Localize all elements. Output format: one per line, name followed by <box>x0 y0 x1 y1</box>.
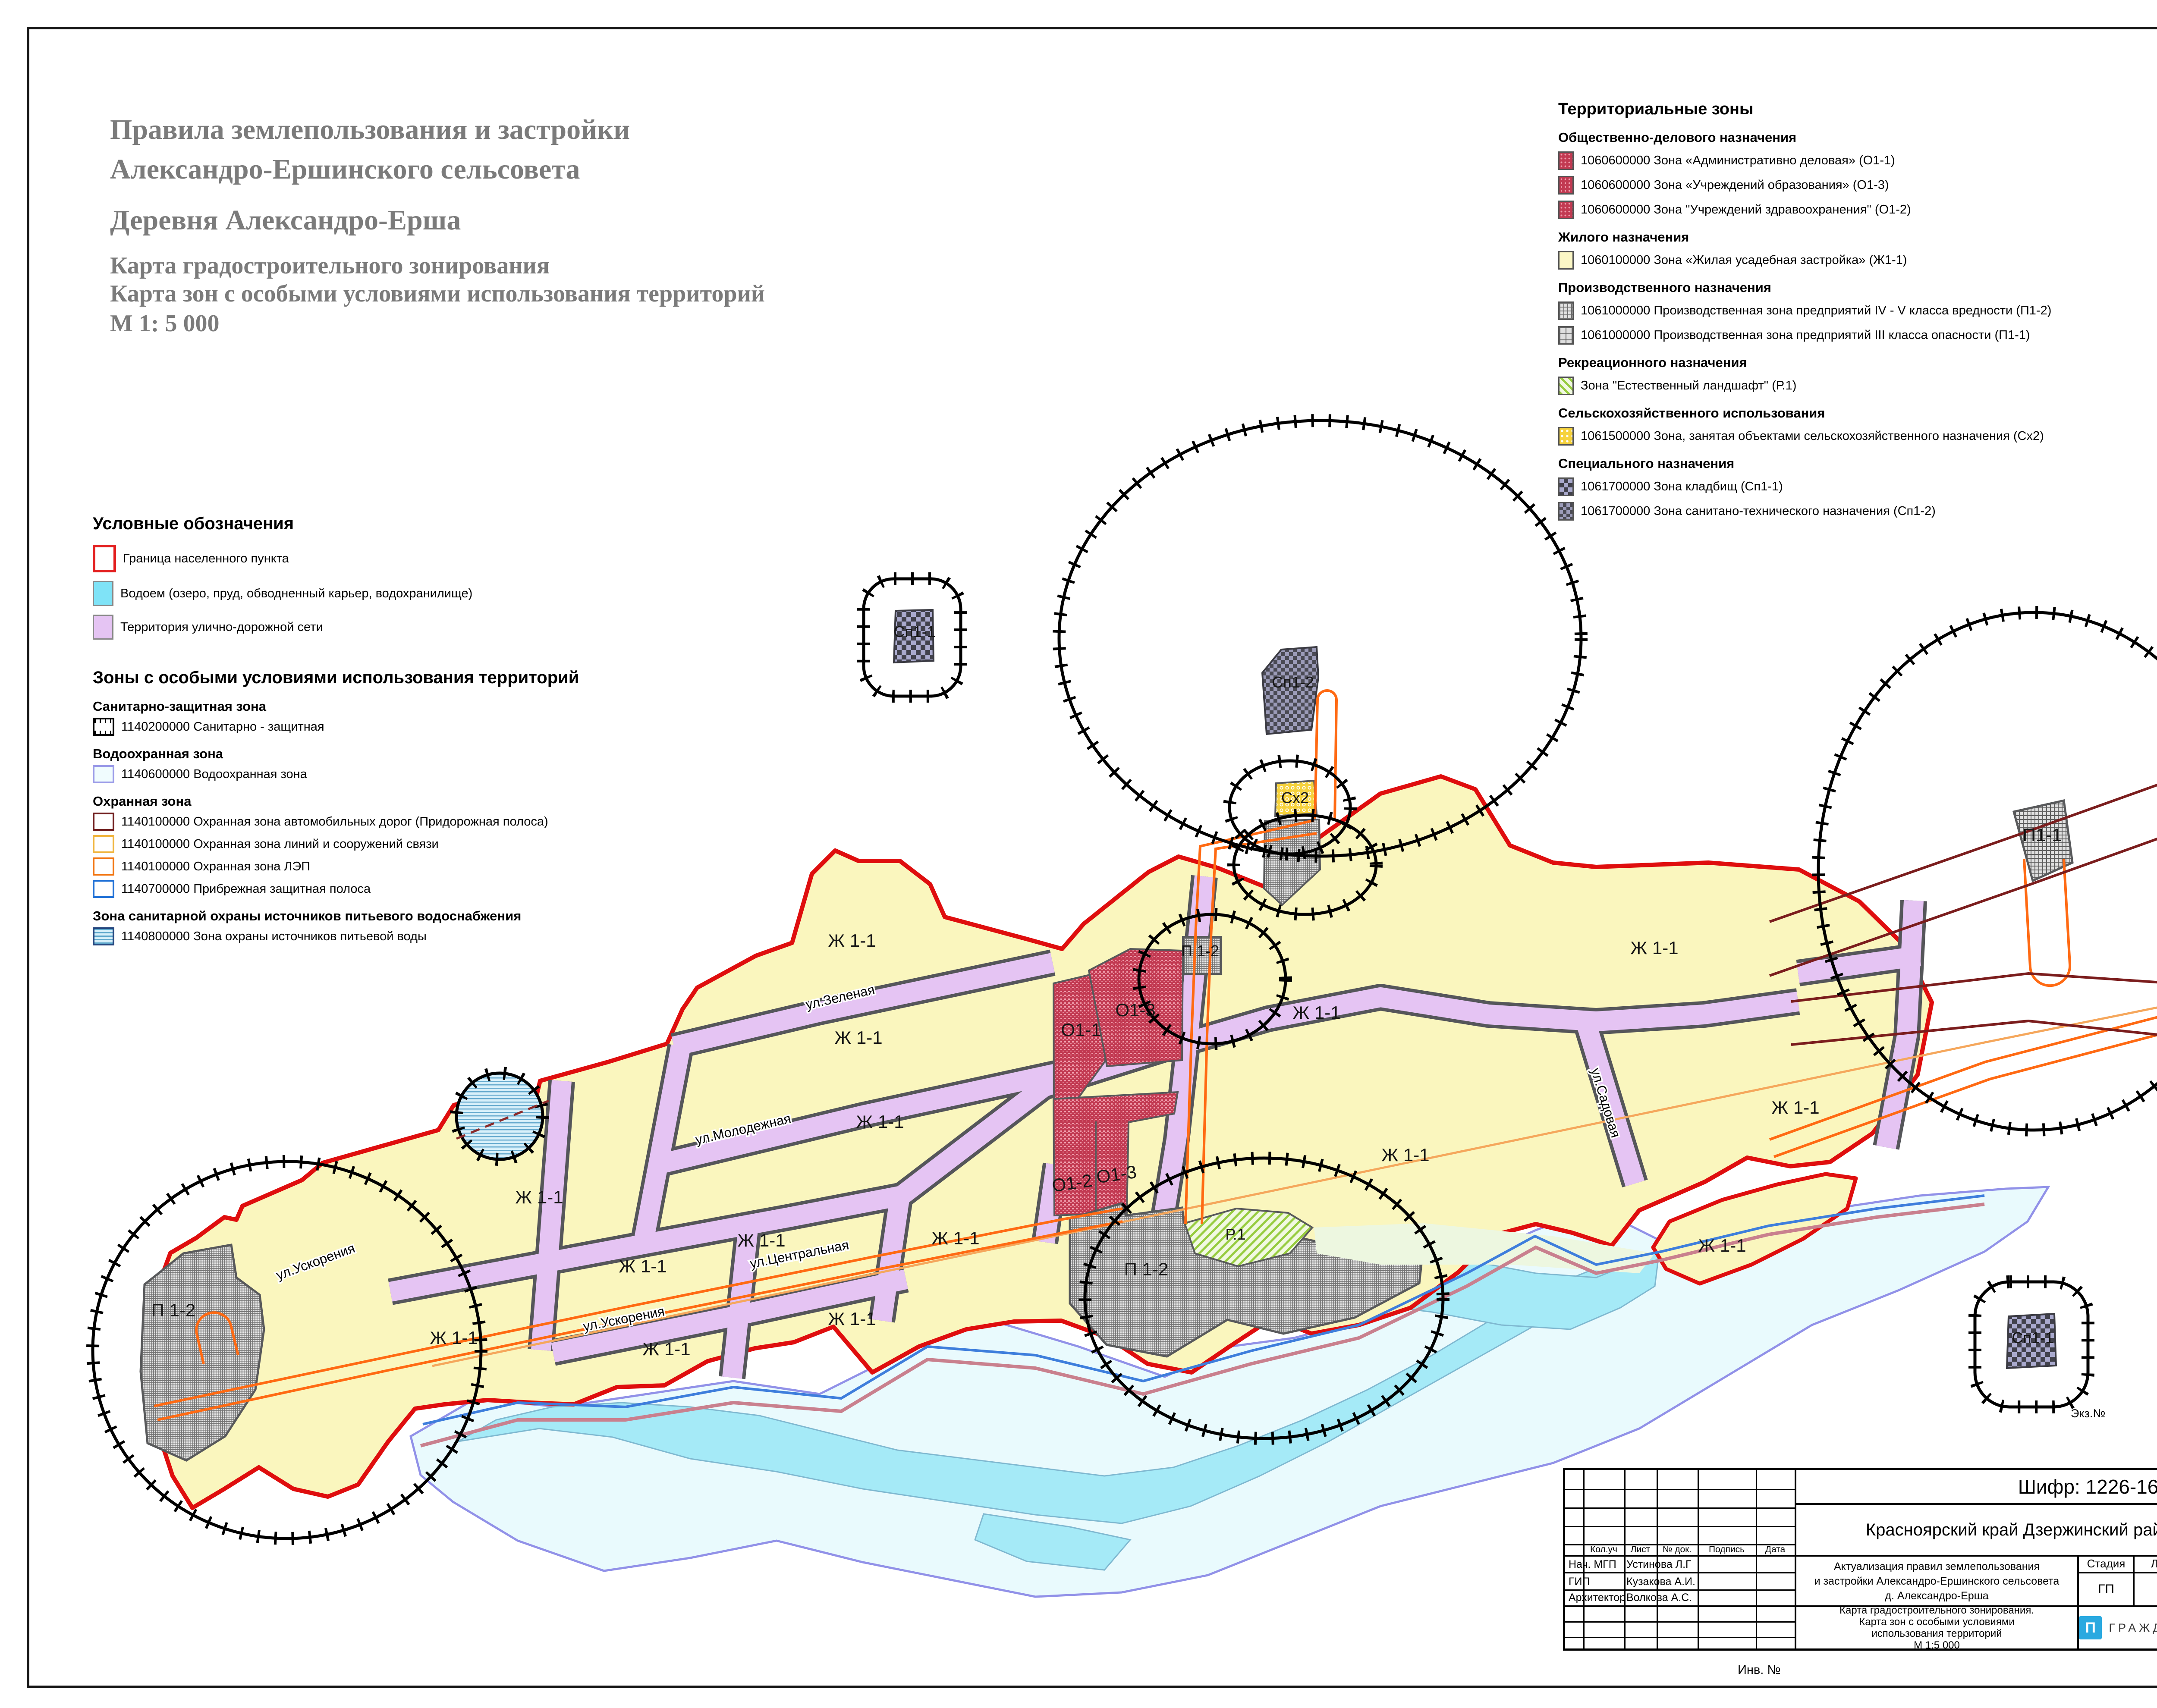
legend-special-title: Зоны с особыми условиями использования т… <box>93 668 766 688</box>
legend-item: 1061700000 Зона санитано-технического на… <box>1558 502 2157 521</box>
swatch-drinking-water-source <box>93 927 114 945</box>
zone-label: Ж 1-1 <box>856 1111 904 1132</box>
legend-item: 1061000000 Производственная зона предпри… <box>1558 326 2157 345</box>
swatch-sp1-2 <box>1558 502 1574 521</box>
zone-label: Сп1-2 <box>1272 673 1314 691</box>
legend-symbols-title: Условные обозначения <box>93 514 766 534</box>
legend-item: 1060600000 Зона "Учреждений здравоохране… <box>1558 201 2157 219</box>
zone-label: Ж 1-1 <box>931 1228 979 1248</box>
legend-item: 1061500000 Зона, занятая объектами сельс… <box>1558 427 2157 446</box>
zone-label: П 1-2 <box>151 1300 196 1320</box>
grazhdanproekt-logo-icon: П <box>2079 1616 2102 1639</box>
swatch-cx2 <box>1558 427 1574 446</box>
zone-label: Сх2 <box>1281 789 1309 807</box>
tb-name: Волкова А.С. <box>1626 1590 1717 1605</box>
title-block: Кол.уч Лист № док. Подпись Дата Нач. МГП… <box>1563 1468 2157 1651</box>
zone-label: Ж 1-1 <box>1771 1097 1819 1118</box>
swatch-shore-protection <box>93 880 114 898</box>
legend-item: 1140100000 Охранная зона автомобильных д… <box>93 813 766 831</box>
tb-col-koluch: Кол.уч <box>1583 1544 1624 1555</box>
legend-item: Зона "Естественный ландшафт" (Р.1) <box>1558 377 2157 395</box>
tb-docname: Карта градостроительного зонирования. Ка… <box>1796 1607 2077 1648</box>
legend-item: 1061000000 Производственная зона предпри… <box>1558 301 2157 320</box>
inventory-number-label: Инв. № <box>1738 1663 1781 1677</box>
legend-territorial-title: Территориальные зоны <box>1558 100 2157 119</box>
zone-label: П1-1 <box>2023 825 2062 845</box>
tb-role: Архитектор <box>1566 1590 1629 1605</box>
legend-territorial: Территориальные зоны Общественно-деловог… <box>1558 100 2157 521</box>
swatch-p1-2 <box>1558 301 1574 320</box>
legend-item: Граница населенного пункта <box>93 545 766 572</box>
legend-group-heading: Специального назначения <box>1558 456 2157 471</box>
zone-label: П 1-2 <box>1124 1259 1169 1279</box>
zone-label: Сп1-1 <box>2012 1329 2054 1347</box>
tb-col-podpis: Подпись <box>1698 1544 1756 1555</box>
legend-item: 1060100000 Зона «Жилая усадебная застрой… <box>1558 251 2157 270</box>
grazhdanproekt-logo-text: ГРАЖДАНПРОЕКТ <box>2109 1621 2157 1635</box>
legend-item: 1140200000 Санитарно - защитная <box>93 718 766 736</box>
legend-item: 1140600000 Водоохранная зона <box>93 765 766 783</box>
zone-label: Ж 1-1 <box>828 1309 876 1329</box>
zone-label: Ж 1-1 <box>828 930 876 951</box>
swatch-power-line-protection <box>93 857 114 876</box>
tb-role: ГИП <box>1566 1574 1627 1589</box>
legend-group-heading: Охранная зона <box>93 794 766 809</box>
legend-group-heading: Жилого назначения <box>1558 229 2157 245</box>
legend-item: Водоем (озеро, пруд, обводненный карьер,… <box>93 581 766 606</box>
legend-group-heading: Зона санитарной охраны источников питьев… <box>93 908 766 924</box>
zone-label: Ж 1-1 <box>1292 1002 1340 1023</box>
swatch-settlement-boundary <box>93 545 116 572</box>
zone-label: Ж 1-1 <box>515 1187 563 1207</box>
zone-label: Ж 1-1 <box>642 1339 690 1359</box>
map-scale: М 1: 5 000 <box>110 311 220 336</box>
legend-item: 1140700000 Прибрежная защитная полоса <box>93 880 766 898</box>
copy-number-label: Экз.№ <box>2071 1407 2105 1420</box>
legend-item: 1061700000 Зона кладбищ (Сп1-1) <box>1558 477 2157 496</box>
zone-label: Ж 1-1 <box>1381 1145 1429 1165</box>
legend-group-heading: Водоохранная зона <box>93 746 766 762</box>
swatch-sp1-1 <box>1558 477 1574 496</box>
tb-list-v: 3 <box>2135 1573 2157 1605</box>
zone-label: Ж 1-1 <box>1630 938 1678 958</box>
zone-label: О1-1 <box>1061 1020 1101 1040</box>
tb-company: П ГРАЖДАНПРОЕКТ <box>2079 1607 2157 1648</box>
legend-group-heading: Рекреационного назначения <box>1558 355 2157 370</box>
tb-stadia-h: Стадия <box>2079 1555 2133 1572</box>
legend-symbols: Условные обозначения Граница населенного… <box>93 514 766 945</box>
swatch-p1-1 <box>1558 326 1574 345</box>
map-title-line1: Карта градостроительного зонирования <box>110 254 550 278</box>
zone-label: П 1-2 <box>1181 942 1219 960</box>
zone-label: Ж 1-1 <box>1698 1235 1746 1256</box>
swatch-sanitary-zone <box>93 718 114 736</box>
zone-label: Ж 1-1 <box>619 1256 667 1276</box>
tb-region: Красноярский край Дзержинский район <box>1796 1505 2157 1555</box>
tb-col-data: Дата <box>1756 1544 1795 1555</box>
tb-col-list: Лист <box>1624 1544 1657 1555</box>
legend-group-heading: Санитарно-защитная зона <box>93 699 766 714</box>
map-title-line2: Карта зон с особыми условиями использова… <box>110 282 765 306</box>
tb-name: Кузакова А.И. <box>1626 1574 1717 1589</box>
swatch-o1-3 <box>1558 176 1574 195</box>
zone-label: Сп1-1 <box>893 623 936 640</box>
swatch-water-protection <box>93 765 114 783</box>
swatch-street-network <box>93 615 113 640</box>
document-subtitle: Деревня Александро-Ерша <box>110 206 461 235</box>
swatch-o1-2 <box>1558 201 1574 219</box>
legend-item: 1140100000 Охранная зона ЛЭП <box>93 857 766 876</box>
legend-item: 1060600000 Зона «Административно деловая… <box>1558 151 2157 170</box>
legend-group-heading: Сельскохозяйственного использования <box>1558 405 2157 421</box>
tb-col-ndok: № док. <box>1657 1544 1698 1555</box>
document-title-line1: Правила землепользования и застройки <box>110 116 630 144</box>
legend-item: Территория улично-дорожной сети <box>93 615 766 640</box>
tb-project: Актуализация правил землепользования и з… <box>1796 1557 2077 1605</box>
tb-name: Устинова Л.Г <box>1626 1557 1717 1572</box>
swatch-communication-protection <box>93 835 114 853</box>
swatch-o1-1 <box>1558 151 1574 170</box>
document-title-line2: Александро-Ершинского сельсовета <box>110 155 580 184</box>
tb-shifr: Шифр: 1226-16.06 <box>1953 1470 2157 1503</box>
legend-item: 1060600000 Зона «Учреждений образования»… <box>1558 176 2157 195</box>
tb-stadia-v: ГП <box>2079 1573 2133 1605</box>
swatch-road-protection <box>93 813 114 831</box>
legend-group-heading: Производственного назначения <box>1558 280 2157 295</box>
zone-label: Ж 1-1 <box>430 1328 478 1348</box>
zone-label: О1-3 <box>1115 1000 1155 1020</box>
swatch-water-body <box>93 581 113 606</box>
zone-label: Р.1 <box>1225 1225 1245 1243</box>
tb-list-h: Лист <box>2135 1555 2157 1572</box>
legend-item: 1140100000 Охранная зона линий и сооруже… <box>93 835 766 853</box>
zone-label: Ж 1-1 <box>834 1027 882 1048</box>
tb-role: Нач. МГП <box>1566 1557 1627 1572</box>
legend-group-heading: Общественно-делового назначения <box>1558 130 2157 145</box>
legend-item: 1140800000 Зона охраны источников питьев… <box>93 927 766 945</box>
swatch-zh1-1 <box>1558 251 1574 270</box>
swatch-r1 <box>1558 377 1574 395</box>
zone-label: Ж 1-1 <box>737 1230 785 1250</box>
